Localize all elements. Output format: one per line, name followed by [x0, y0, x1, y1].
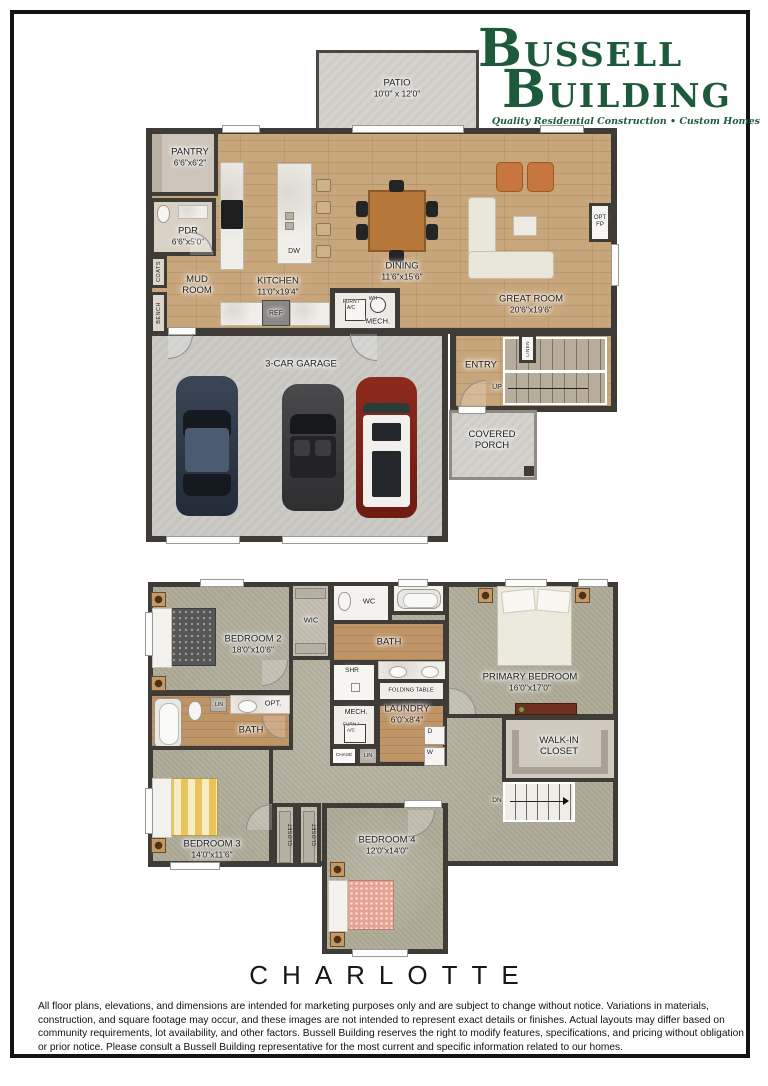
- side-table: [513, 216, 537, 236]
- logo-tagline: Quality Residential Construction • Custo…: [478, 116, 760, 127]
- kitchen-counter-bottom-right: [290, 302, 330, 326]
- porch-post: [524, 466, 534, 476]
- window: [222, 125, 260, 133]
- convertible-windshield: [290, 414, 336, 434]
- bed3: [152, 778, 218, 836]
- nightstand: [330, 932, 345, 947]
- bar-stool: [316, 179, 331, 192]
- dn-run-line: [510, 801, 564, 802]
- furn-ac-label-f1: FURN /A/C: [343, 300, 360, 312]
- pantry-label: PANTRY6'6"x6'2": [171, 146, 209, 167]
- tub-basin-left: [159, 703, 179, 745]
- dryer-label: D: [428, 728, 433, 736]
- vanity-sink: [421, 666, 439, 678]
- stair-divider: [505, 370, 605, 373]
- pdr-sink: [178, 205, 208, 219]
- bed2-pillows: [152, 608, 172, 668]
- dining-chair: [426, 201, 438, 217]
- furn-ac-label-f2: FURN /A/C: [343, 722, 359, 733]
- window: [145, 612, 153, 656]
- double-vanity: [378, 661, 447, 680]
- lin-hall-label: LIN: [364, 753, 373, 759]
- bar-stool: [316, 201, 331, 214]
- patio-door: [352, 125, 464, 133]
- primary-pillow: [501, 588, 536, 613]
- bussell-building-logo: BUSSELL BUILDING Quality Residential Con…: [478, 26, 760, 127]
- bath-left-toilet: [188, 701, 202, 721]
- window: [540, 125, 584, 133]
- window: [145, 788, 153, 834]
- primary-pillow: [536, 589, 571, 614]
- pantry-shelf: [152, 134, 162, 192]
- bar-stool: [316, 223, 331, 236]
- plan-title: CHARLOTTE: [0, 960, 768, 991]
- sedan-car: [176, 376, 238, 516]
- stair-run-line: [508, 388, 588, 389]
- wc-toilet: [338, 592, 351, 611]
- dishwasher-label: DW: [288, 248, 300, 256]
- range-stove: [221, 200, 243, 229]
- lin-bath-label: LIN: [215, 702, 224, 708]
- bathtub-top: [397, 589, 441, 609]
- shr-label: SHR: [345, 667, 359, 675]
- logo-line2: BUILDING: [502, 67, 760, 114]
- dining-chair: [389, 180, 404, 192]
- nightstand: [478, 588, 493, 603]
- laundry-label: LAUNDRY6'0"x8'4": [384, 703, 429, 724]
- tub-basin: [403, 593, 438, 608]
- sedan-roof: [185, 428, 229, 472]
- convertible-cockpit: [290, 436, 336, 478]
- great-room-label: GREAT ROOM20'6"x19'6": [499, 293, 563, 314]
- wic-shelf: [295, 643, 326, 654]
- dresser: [515, 703, 577, 715]
- opt-label: OPT.: [265, 700, 282, 709]
- mud-room-label: MUDROOM: [182, 274, 212, 296]
- bed2: [152, 608, 216, 666]
- window: [404, 800, 442, 808]
- closet-b-label: CLOSET: [310, 807, 320, 863]
- bath-top-label: BATH: [377, 636, 402, 647]
- patio-label: PATIO10'0" x 12'0": [374, 77, 421, 98]
- washer-label: W: [427, 749, 433, 757]
- disclaimer-text: All floor plans, elevations, and dimensi…: [38, 1000, 746, 1054]
- dining-chair: [426, 224, 438, 240]
- dining-chair: [356, 201, 368, 217]
- sectional-sofa-horizontal: [468, 251, 554, 279]
- folding-table-label: FOLDING TABLE: [388, 688, 433, 695]
- up-label: UP: [492, 384, 502, 392]
- floorplan-sheet: BUSSELL BUILDING Quality Residential Con…: [0, 0, 768, 1086]
- wc-room: [330, 582, 392, 624]
- suv-roof-glass: [372, 451, 401, 497]
- primary-bedroom-label: PRIMARY BEDROOM16'0"x17'0": [483, 671, 578, 692]
- window: [200, 579, 244, 587]
- chase-label: CHASE: [336, 753, 353, 759]
- closet-a-label: CLOSET: [286, 807, 296, 863]
- suv-car: [356, 377, 417, 518]
- dining-table: [368, 190, 426, 252]
- window: [578, 579, 608, 587]
- dining-chair: [356, 224, 368, 240]
- window: [352, 949, 408, 957]
- bath-left-label: BATH: [239, 724, 264, 735]
- dn-arrow-head: [563, 797, 569, 805]
- window: [505, 579, 547, 587]
- armchair: [496, 162, 523, 192]
- bed4-pillows: [328, 880, 348, 932]
- dresser-plant: [519, 707, 524, 712]
- vanity-sink: [389, 666, 407, 678]
- suv-windshield: [363, 403, 410, 413]
- wc-label: WC: [363, 598, 376, 607]
- garage-door: [166, 536, 240, 544]
- front-door-gap: [458, 406, 486, 414]
- suv-sunroof: [372, 423, 401, 441]
- wic-label: WIC: [304, 617, 319, 626]
- window: [170, 862, 220, 870]
- shower-drain: [351, 683, 360, 692]
- bedroom2-label: BEDROOM 218'0"x10'6": [224, 633, 281, 654]
- bar-stool: [316, 245, 331, 258]
- wic-shelf: [295, 588, 326, 599]
- nightstand: [151, 676, 166, 691]
- mech-label-f2: MECH.: [345, 709, 368, 717]
- suv-roof: [363, 415, 410, 507]
- opt-fp-label: OPTFP: [594, 215, 606, 229]
- nightstand: [151, 592, 166, 607]
- bed3-pillows: [152, 778, 172, 838]
- nightstand: [330, 862, 345, 877]
- sedan-rear-glass: [183, 474, 231, 496]
- opt-vanity-sink: [238, 700, 257, 713]
- garage-door: [282, 536, 428, 544]
- convertible-seat: [294, 440, 310, 456]
- armchair: [527, 162, 554, 192]
- linen-closet-f1: LINEN: [519, 334, 536, 363]
- ref-label: REF: [269, 310, 283, 318]
- window: [611, 244, 619, 286]
- dn-label: DN: [492, 797, 501, 805]
- bedroom4-label: BEDROOM 412'0"x14'0": [358, 834, 415, 855]
- window: [398, 579, 428, 587]
- kitchen-counter-bottom-left: [220, 302, 263, 326]
- pdr-toilet: [157, 205, 170, 223]
- covered-porch-label: COVEREDPORCH: [469, 429, 516, 451]
- bench-nook: BENCH: [150, 292, 167, 334]
- convertible-seat: [315, 440, 331, 456]
- nightstand: [575, 588, 590, 603]
- wh-label: WH: [369, 297, 377, 303]
- mech-label-f1: MECH.: [366, 318, 390, 327]
- dining-label: DINING11'6"x15'6": [381, 260, 422, 281]
- walk-in-closet-label: WALK-INCLOSET: [539, 735, 578, 757]
- garage-label: 3-CAR GARAGE: [265, 358, 337, 369]
- island-sink-a: [285, 212, 294, 220]
- entry-label: ENTRY: [465, 359, 497, 370]
- bathtub-left: [154, 698, 182, 748]
- coats-closet: COATS: [150, 256, 167, 288]
- nightstand: [151, 838, 166, 853]
- island-sink-b: [285, 222, 294, 230]
- kitchen-label: KITCHEN11'0"x19'4": [257, 275, 299, 296]
- primary-bed: [497, 586, 572, 666]
- bedroom3-label: BEDROOM 314'0"x11'6": [183, 838, 240, 859]
- convertible-car: [282, 384, 344, 511]
- bed4: [328, 880, 394, 930]
